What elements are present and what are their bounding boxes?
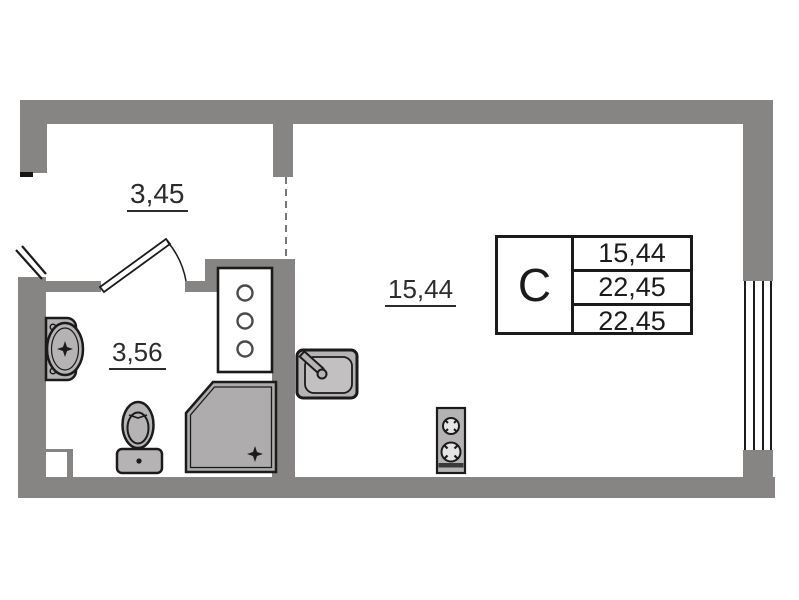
- legend-area-row: 15,44: [574, 238, 690, 272]
- unit-legend-table: C 15,44 22,45 22,45: [495, 235, 693, 335]
- main-room-area-label: 15,44: [385, 276, 456, 307]
- toilet-icon: [117, 402, 162, 473]
- hallway-area-label: 3,45: [127, 179, 188, 212]
- unit-type-cell: C: [498, 238, 574, 332]
- legend-area-row: 22,45: [574, 306, 690, 337]
- entry-door-icon: [16, 246, 46, 279]
- kitchen-sink-icon: [297, 350, 357, 398]
- legend-area-row: 22,45: [574, 272, 690, 306]
- washbasin-icon: [46, 318, 83, 380]
- floor-plan-canvas: 3,45 3,56 15,44 C 15,44 22,45 22,45: [0, 0, 799, 600]
- shower-cabin-icon: [186, 382, 276, 472]
- stove-icon: [437, 408, 465, 473]
- bathroom-area-label: 3,56: [109, 339, 166, 370]
- utility-cabinet-icon: [218, 268, 272, 372]
- bathroom-door-icon: [100, 239, 186, 292]
- unit-areas-column: 15,44 22,45 22,45: [574, 238, 690, 332]
